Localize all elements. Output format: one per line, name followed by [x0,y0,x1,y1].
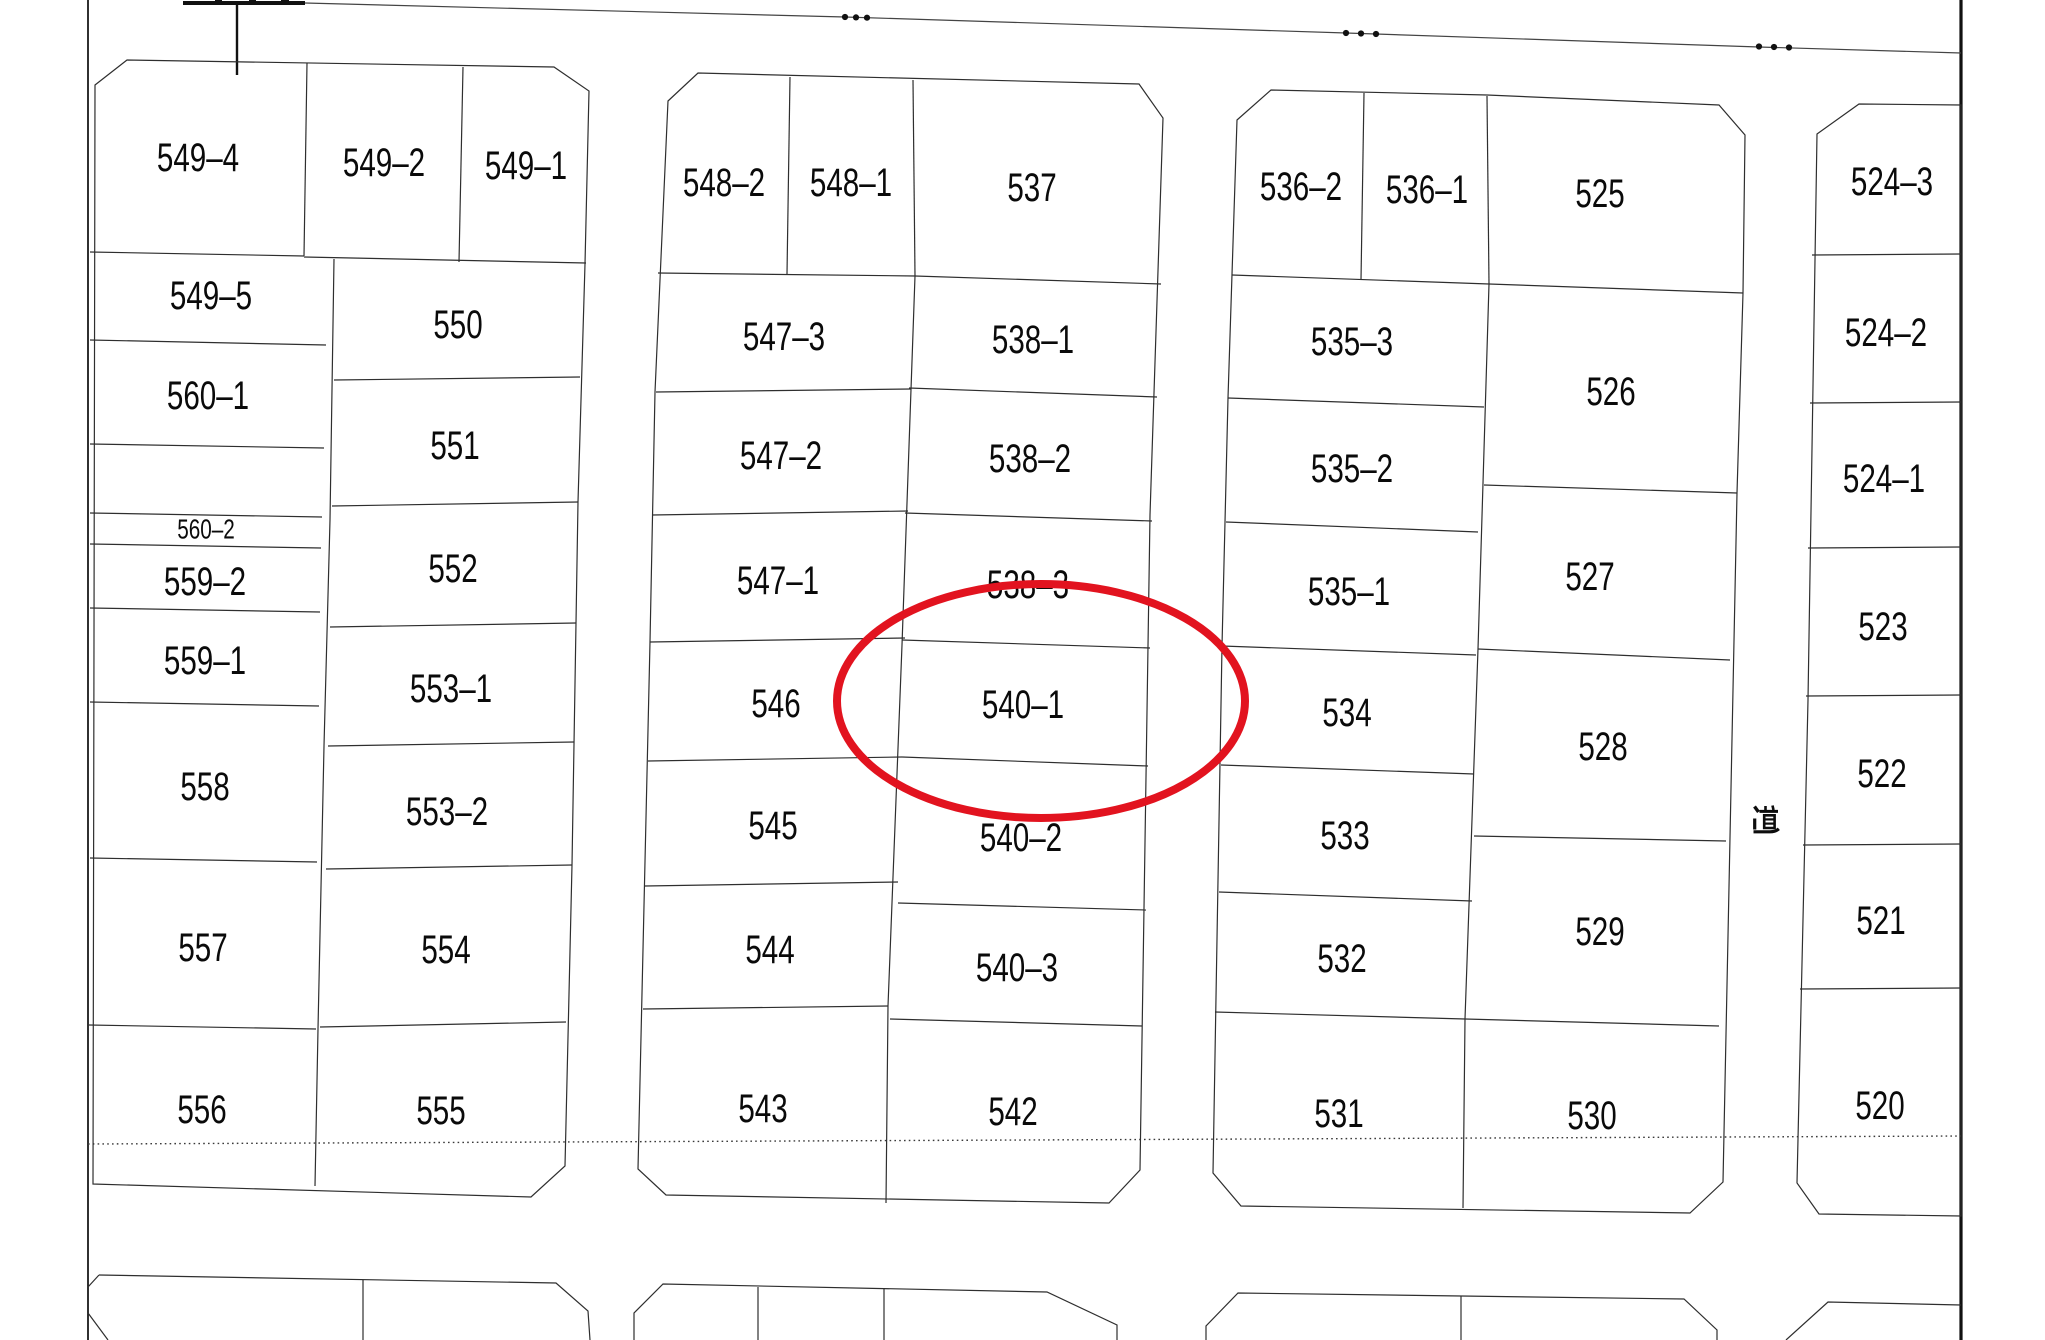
svg-text:524–1: 524–1 [1843,457,1925,501]
svg-text:520: 520 [1855,1084,1904,1128]
svg-text:524–3: 524–3 [1851,160,1933,204]
svg-text:535–2: 535–2 [1311,447,1393,491]
svg-text:554: 554 [421,928,470,972]
svg-text:543: 543 [738,1087,787,1131]
svg-text:549–1: 549–1 [485,144,567,188]
svg-text:535–3: 535–3 [1311,320,1393,364]
svg-text:536–2: 536–2 [1260,165,1342,209]
svg-text:557: 557 [178,926,227,970]
svg-text:556: 556 [177,1088,226,1132]
svg-text:546: 546 [751,682,800,726]
svg-text:540–3: 540–3 [976,946,1058,990]
svg-text:553–2: 553–2 [406,790,488,834]
svg-text:534: 534 [1322,691,1371,735]
svg-text:550: 550 [433,303,482,347]
svg-text:538–1: 538–1 [992,318,1074,362]
svg-text:524–2: 524–2 [1845,311,1927,355]
svg-text:555: 555 [416,1089,465,1133]
svg-text:559–2: 559–2 [164,560,246,604]
svg-text:559–1: 559–1 [164,639,246,683]
svg-text:547–2: 547–2 [740,434,822,478]
svg-text:544: 544 [745,928,794,972]
svg-text:553–1: 553–1 [410,667,492,711]
svg-text:529: 529 [1575,910,1624,954]
svg-text:540–2: 540–2 [980,816,1062,860]
svg-text:535–1: 535–1 [1308,570,1390,614]
svg-text:532: 532 [1317,937,1366,981]
svg-text:549–2: 549–2 [343,141,425,185]
svg-text:523: 523 [1858,605,1907,649]
svg-text:558: 558 [180,765,229,809]
svg-text:549–5: 549–5 [170,274,252,318]
svg-text:538–2: 538–2 [989,437,1071,481]
svg-text:528: 528 [1578,725,1627,769]
svg-text:526: 526 [1586,370,1635,414]
svg-text:560–1: 560–1 [167,374,249,418]
svg-text:531: 531 [1314,1092,1363,1136]
svg-text:549–4: 549–4 [157,136,239,180]
svg-text:548–1: 548–1 [810,161,892,205]
svg-text:525: 525 [1575,172,1624,216]
svg-text:547–3: 547–3 [743,315,825,359]
svg-text:533: 533 [1320,814,1369,858]
svg-text:537: 537 [1007,166,1056,210]
svg-text:548–2: 548–2 [683,161,765,205]
svg-text:540–1: 540–1 [982,683,1064,727]
svg-text:545: 545 [748,804,797,848]
svg-text:522: 522 [1857,752,1906,796]
svg-text:542: 542 [988,1090,1037,1134]
svg-text:536–1: 536–1 [1386,168,1468,212]
svg-text:560–2: 560–2 [177,515,235,546]
svg-text:551: 551 [430,424,479,468]
svg-text:547–1: 547–1 [737,559,819,603]
svg-text:530: 530 [1567,1094,1616,1138]
svg-text:527: 527 [1565,555,1614,599]
svg-text:521: 521 [1856,899,1905,943]
svg-text:552: 552 [428,547,477,591]
